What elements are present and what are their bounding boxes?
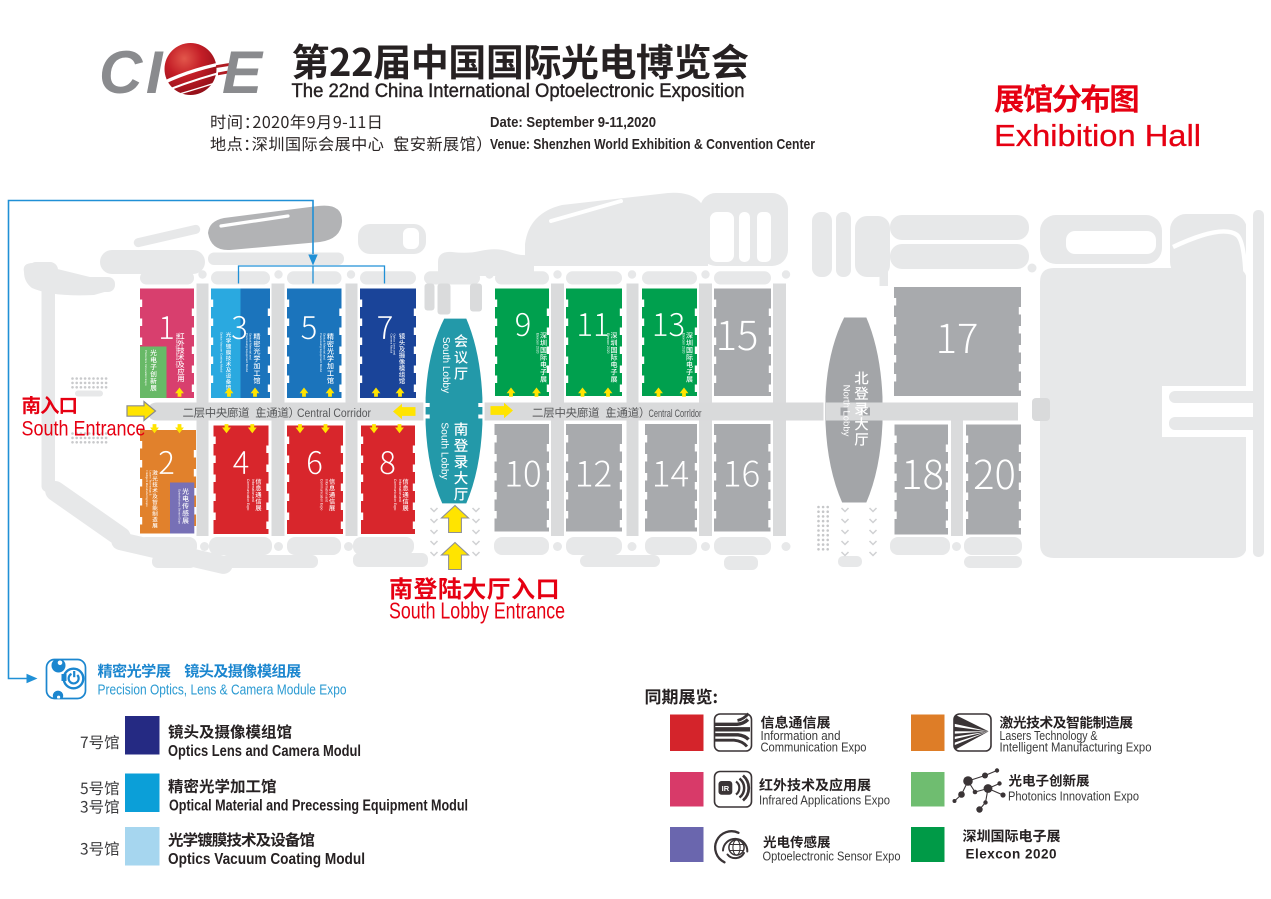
svg-text:IR: IR bbox=[722, 784, 730, 793]
svg-text:Central Corridor: Central Corridor bbox=[297, 406, 371, 420]
svg-text:Communication Expo: Communication Expo bbox=[246, 479, 250, 511]
svg-text:Photonics Innovation Expo: Photonics Innovation Expo bbox=[144, 350, 148, 386]
svg-text:Intelligent Manufacturing Expo: Intelligent Manufacturing Expo bbox=[1000, 740, 1152, 755]
svg-text:Infrared Applications Expo: Infrared Applications Expo bbox=[759, 793, 890, 808]
svg-text:Information and: Information and bbox=[398, 479, 402, 502]
svg-text:Precessing Equipment Modul: Precessing Equipment Modul bbox=[319, 333, 323, 372]
svg-text:South Lobby: South Lobby bbox=[439, 422, 450, 480]
svg-text:Information and: Information and bbox=[251, 479, 255, 502]
svg-text:Elexcon 2020: Elexcon 2020 bbox=[966, 847, 1058, 862]
svg-text:Optoelectronic Sensor Expo: Optoelectronic Sensor Expo bbox=[763, 849, 901, 864]
svg-text:Elexcon 2020: Elexcon 2020 bbox=[606, 333, 610, 354]
svg-text:Precessing Equipment Modul: Precessing Equipment Modul bbox=[245, 333, 249, 372]
svg-text:Information and: Information and bbox=[324, 479, 328, 502]
svg-text:Elexcon 2020: Elexcon 2020 bbox=[682, 333, 686, 354]
svg-text:Elexcon 2020: Elexcon 2020 bbox=[536, 333, 540, 354]
svg-text:Optoelectronic Sensor Expo: Optoelectronic Sensor Expo bbox=[178, 489, 182, 524]
svg-text:Camera Modul: Camera Modul bbox=[389, 334, 393, 354]
svg-text:South Entrance: South Entrance bbox=[22, 417, 146, 441]
svg-text:Optics Vacuum Coating Modul: Optics Vacuum Coating Modul bbox=[220, 332, 224, 373]
svg-text:Optics Lens and Camera Modul: Optics Lens and Camera Modul bbox=[168, 743, 361, 760]
svg-text:Communication Expo: Communication Expo bbox=[761, 740, 867, 755]
svg-text:South Lobby Entrance: South Lobby Entrance bbox=[389, 598, 565, 624]
svg-text:Date: September 9-11,2020: Date: September 9-11,2020 bbox=[490, 115, 656, 131]
svg-text:Photonics Innovation Expo: Photonics Innovation Expo bbox=[1008, 789, 1139, 804]
svg-text:Exhibition Hall: Exhibition Hall bbox=[994, 118, 1201, 153]
svg-text:Intelligent Manufacturing Expo: Intelligent Manufacturing Expo bbox=[145, 471, 149, 508]
svg-text:Optical Material and Precessin: Optical Material and Precessing Equipmen… bbox=[169, 798, 468, 815]
svg-text:Lasers Technology &: Lasers Technology & bbox=[148, 471, 152, 496]
svg-text:South Lobby: South Lobby bbox=[440, 337, 451, 393]
svg-text:Precision Optics, Lens & Camer: Precision Optics, Lens & Camera Module E… bbox=[98, 683, 347, 699]
svg-text:Venue: Shenzhen World Exhibit: Venue: Shenzhen World Exhibition & Conve… bbox=[490, 136, 815, 153]
svg-text:Optics Vacuum Coating Modul: Optics Vacuum Coating Modul bbox=[168, 851, 365, 868]
svg-text:Central Corrldor: Central Corrldor bbox=[649, 408, 702, 420]
svg-text:E: E bbox=[222, 39, 264, 106]
svg-text:The 22nd China International O: The 22nd China International Optoelectro… bbox=[292, 80, 745, 102]
svg-text:North Lobby: North Lobby bbox=[841, 385, 852, 437]
svg-text:CI: CI bbox=[99, 39, 166, 106]
svg-text:Infrared Applications Expo: Infrared Applications Expo bbox=[175, 333, 179, 368]
svg-text:Communication Expo: Communication Expo bbox=[393, 479, 397, 511]
svg-text:Communication Expo: Communication Expo bbox=[320, 479, 324, 511]
